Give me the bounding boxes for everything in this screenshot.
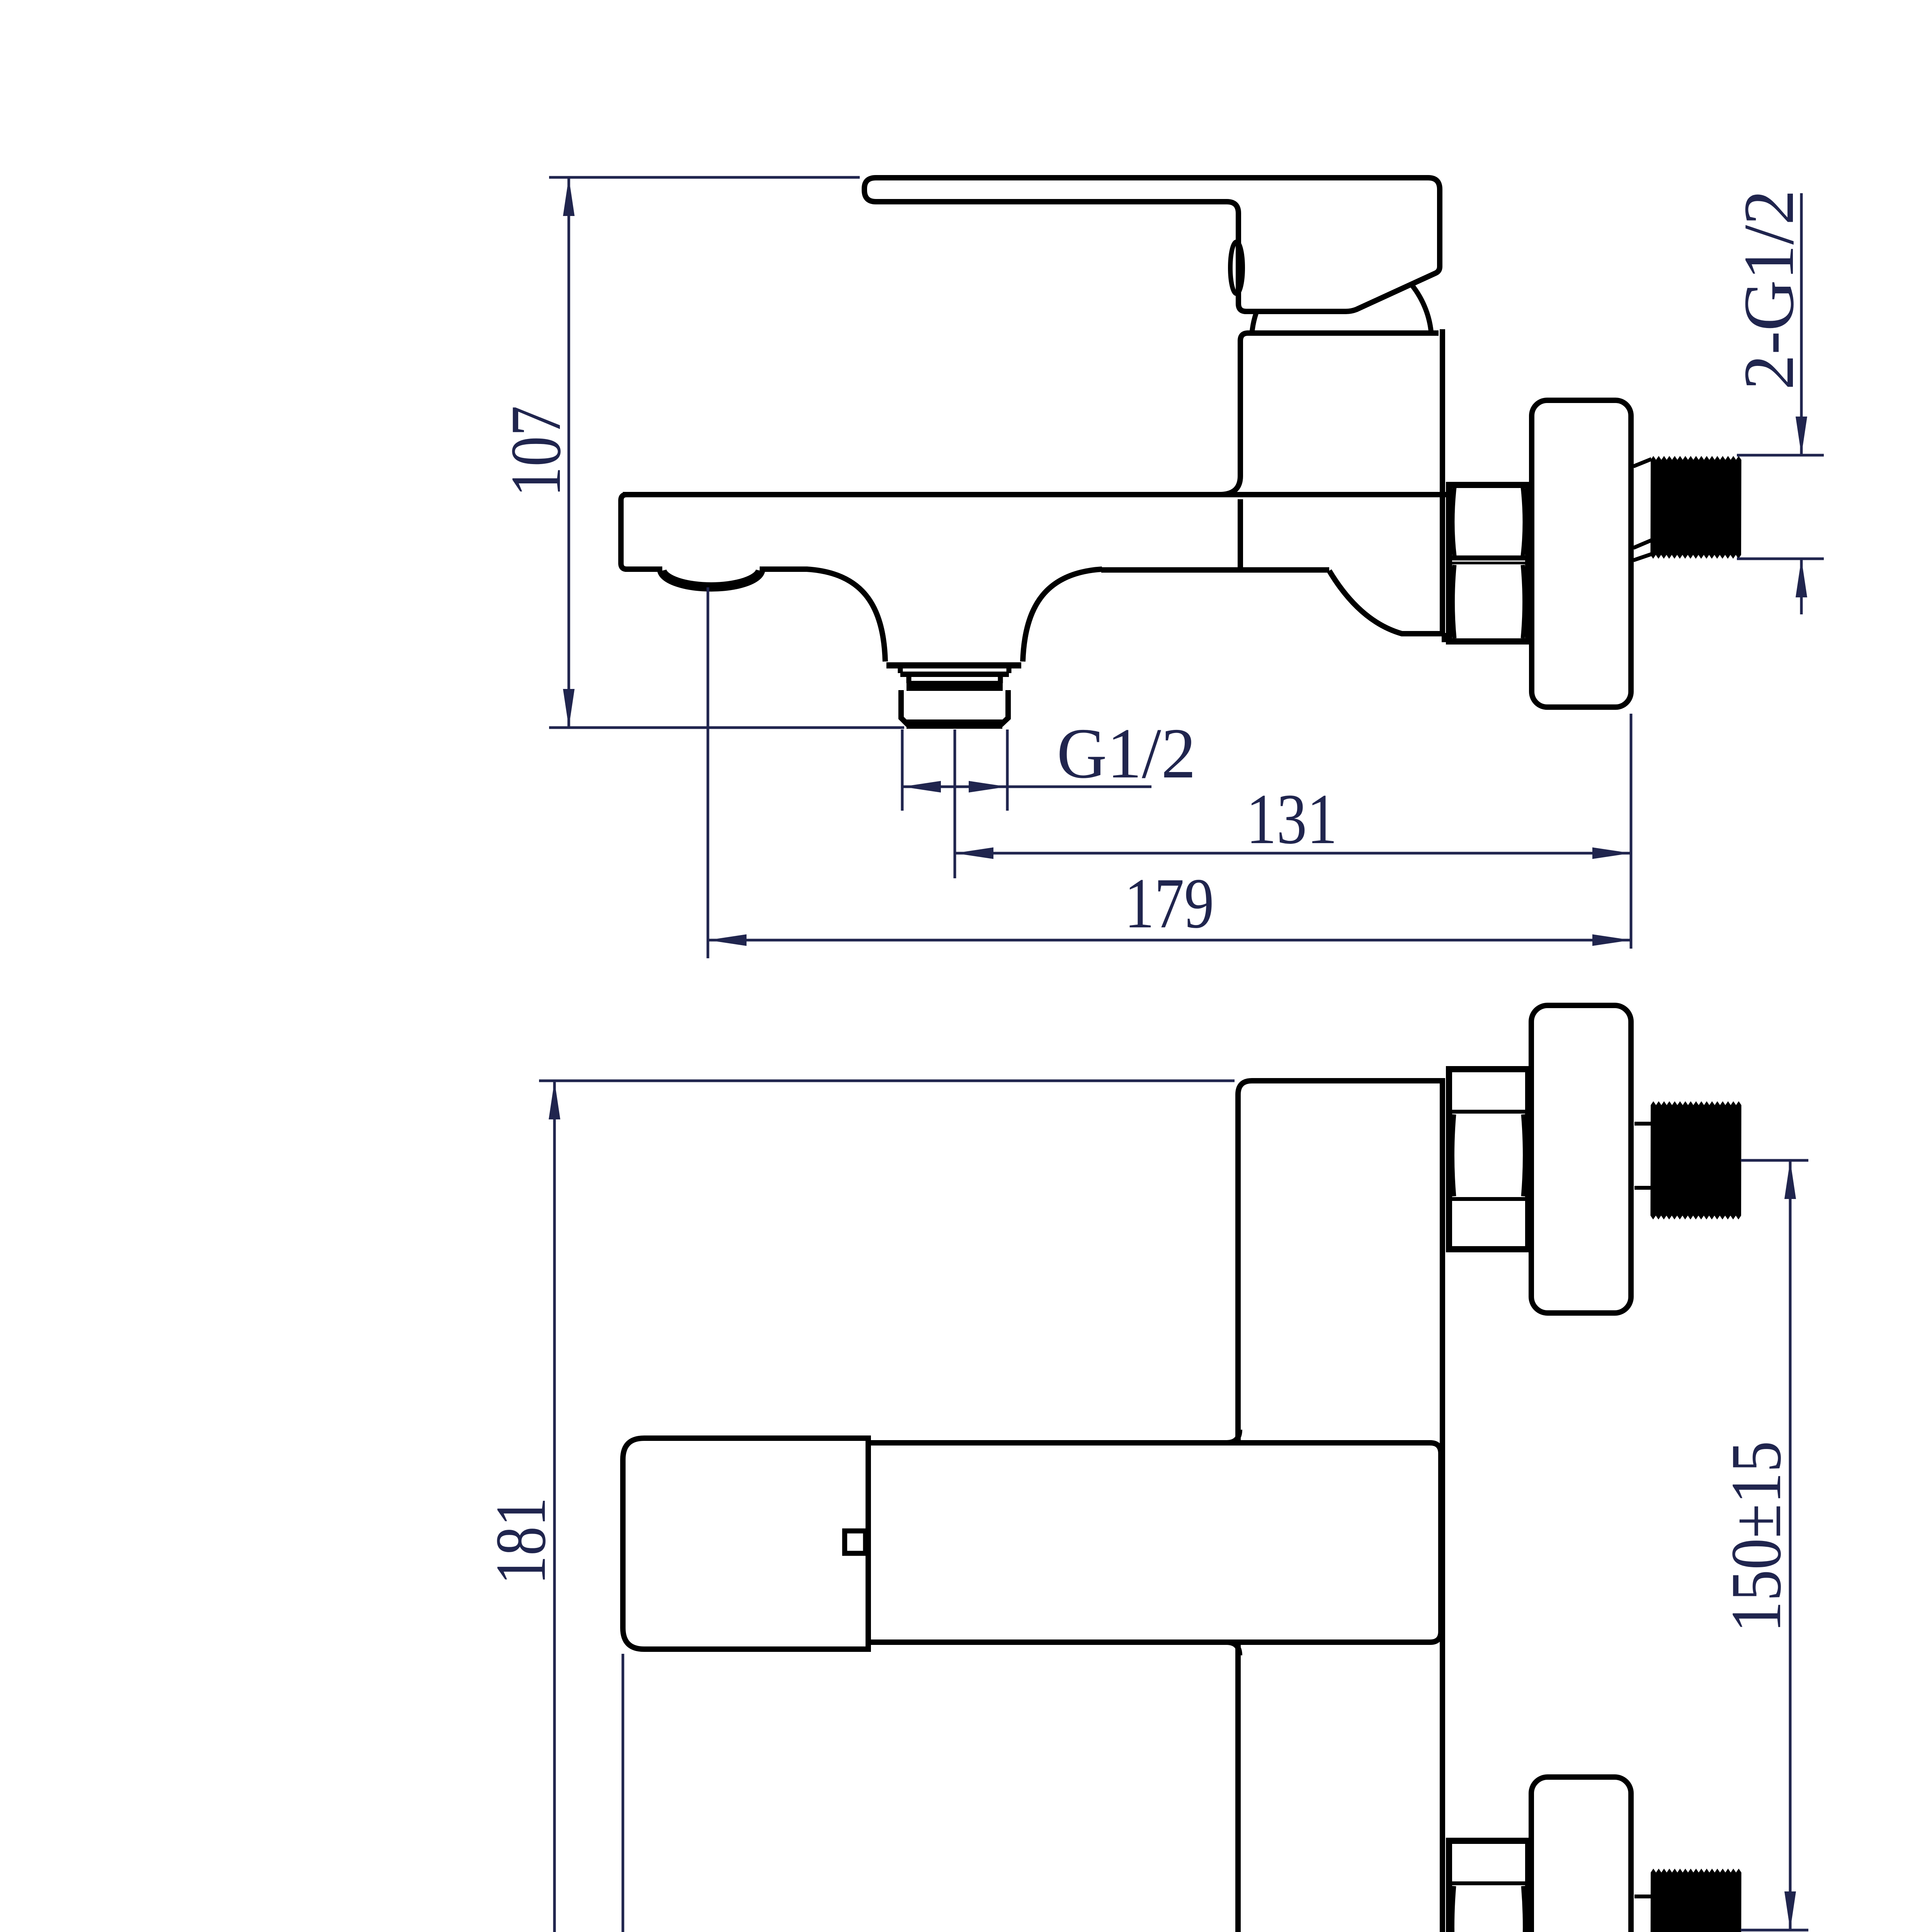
svg-text:181: 181 (481, 1497, 561, 1585)
svg-text:131: 131 (1246, 779, 1337, 859)
svg-text:179: 179 (1124, 864, 1214, 943)
svg-text:2-G1/2: 2-G1/2 (1729, 190, 1809, 390)
svg-text:G1/2: G1/2 (1057, 714, 1196, 793)
svg-text:107: 107 (496, 406, 576, 497)
svg-text:150±15: 150±15 (1716, 1441, 1796, 1633)
